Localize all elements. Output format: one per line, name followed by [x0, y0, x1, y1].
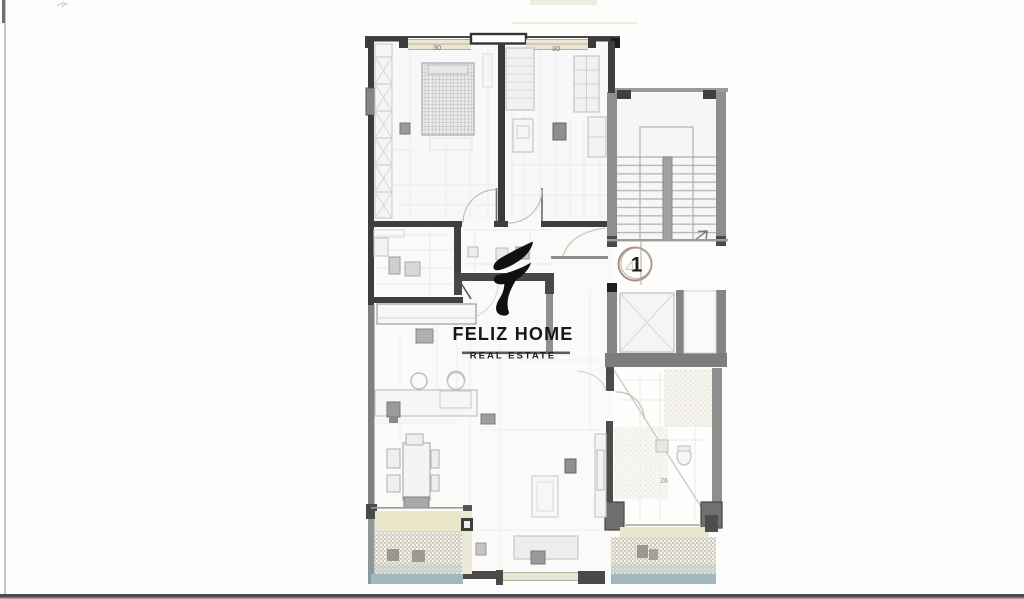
svg-text:FELIZ HOME: FELIZ HOME — [453, 324, 574, 344]
svg-text:26: 26 — [660, 478, 668, 485]
svg-text:30: 30 — [552, 44, 560, 53]
svg-text:REAL ESTATE: REAL ESTATE — [470, 351, 556, 362]
svg-text:30: 30 — [433, 43, 441, 52]
